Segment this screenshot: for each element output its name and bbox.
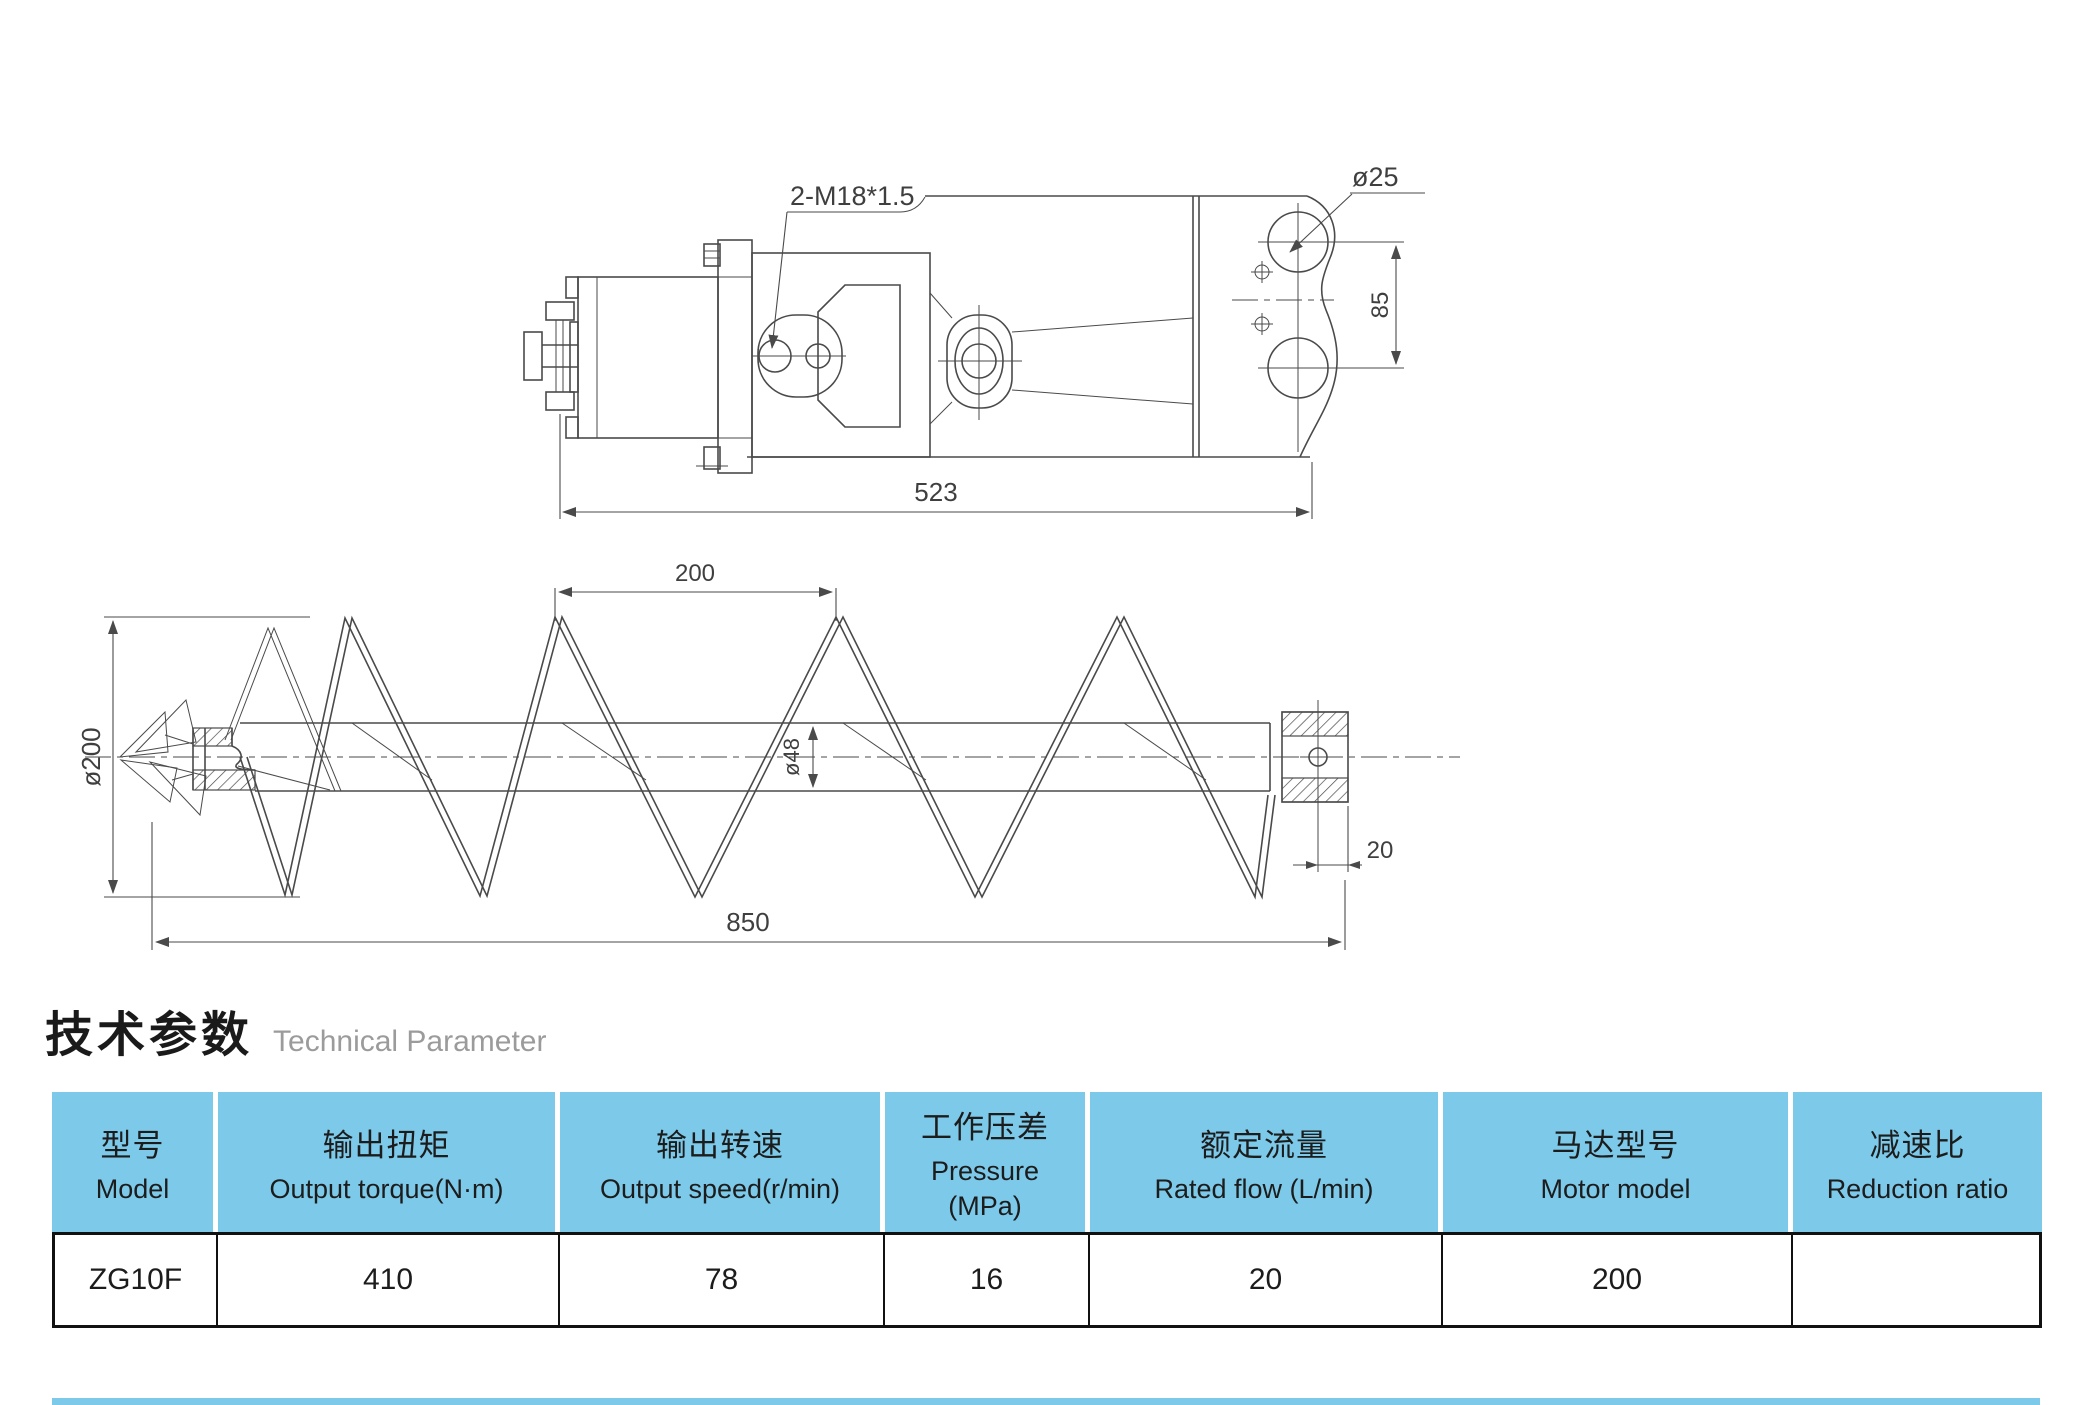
dim-label-thread: 2-M18*1.5	[790, 181, 915, 211]
cell-model: ZG10F	[55, 1235, 218, 1325]
parameter-table: 型号 Model 输出扭矩 Output torque(N·m) 输出转速 Ou…	[52, 1092, 2042, 1328]
cell-output-speed: 78	[560, 1235, 885, 1325]
table-header-pressure: 工作压差 Pressure (MPa)	[885, 1092, 1090, 1232]
section-title: 技术参数 Technical Parameter	[45, 995, 546, 1065]
section-title-en: Technical Parameter	[273, 1025, 546, 1059]
table-header-motor-model: 马达型号 Motor model	[1443, 1092, 1793, 1232]
table-header-output-torque: 输出扭矩 Output torque(N·m)	[218, 1092, 560, 1232]
dim-label-tube-dia: ø48	[779, 738, 804, 776]
auger-drawing: 200 ø200 ø48 20 850	[60, 550, 1500, 970]
motor-assembly-drawing: 2-M18*1.5 ø25 85 523	[520, 110, 1490, 550]
section-title-zh: 技术参数	[45, 995, 253, 1065]
dim-label-hole-spacing: 85	[1367, 292, 1394, 319]
cell-rated-flow: 20	[1090, 1235, 1443, 1325]
dim-label-length-523: 523	[914, 477, 957, 507]
table-row: ZG10F 410 78 16 20 200	[52, 1232, 2042, 1328]
cell-pressure: 16	[885, 1235, 1090, 1325]
cell-output-torque: 410	[218, 1235, 560, 1325]
cell-motor-model: 200	[1443, 1235, 1793, 1325]
table-header-output-speed: 输出转速 Output speed(r/min)	[560, 1092, 885, 1232]
table-header-row: 型号 Model 输出扭矩 Output torque(N·m) 输出转速 Ou…	[52, 1092, 2042, 1232]
dim-label-length-850: 850	[726, 907, 769, 937]
bottom-accent-bar	[52, 1398, 2040, 1405]
table-header-model: 型号 Model	[52, 1092, 218, 1232]
dim-label-outer-dia: ø200	[76, 727, 106, 786]
table-header-rated-flow: 额定流量 Rated flow (L/min)	[1090, 1092, 1443, 1232]
dim-label-pitch: 200	[675, 560, 715, 587]
dim-label-hole-dia: ø25	[1352, 162, 1399, 192]
table-header-reduction-ratio: 减速比 Reduction ratio	[1793, 1092, 2042, 1232]
dim-label-end-offset: 20	[1367, 837, 1394, 864]
cell-reduction-ratio	[1793, 1235, 2039, 1325]
catalog-page: 2-M18*1.5 ø25 85 523	[0, 0, 2094, 1405]
